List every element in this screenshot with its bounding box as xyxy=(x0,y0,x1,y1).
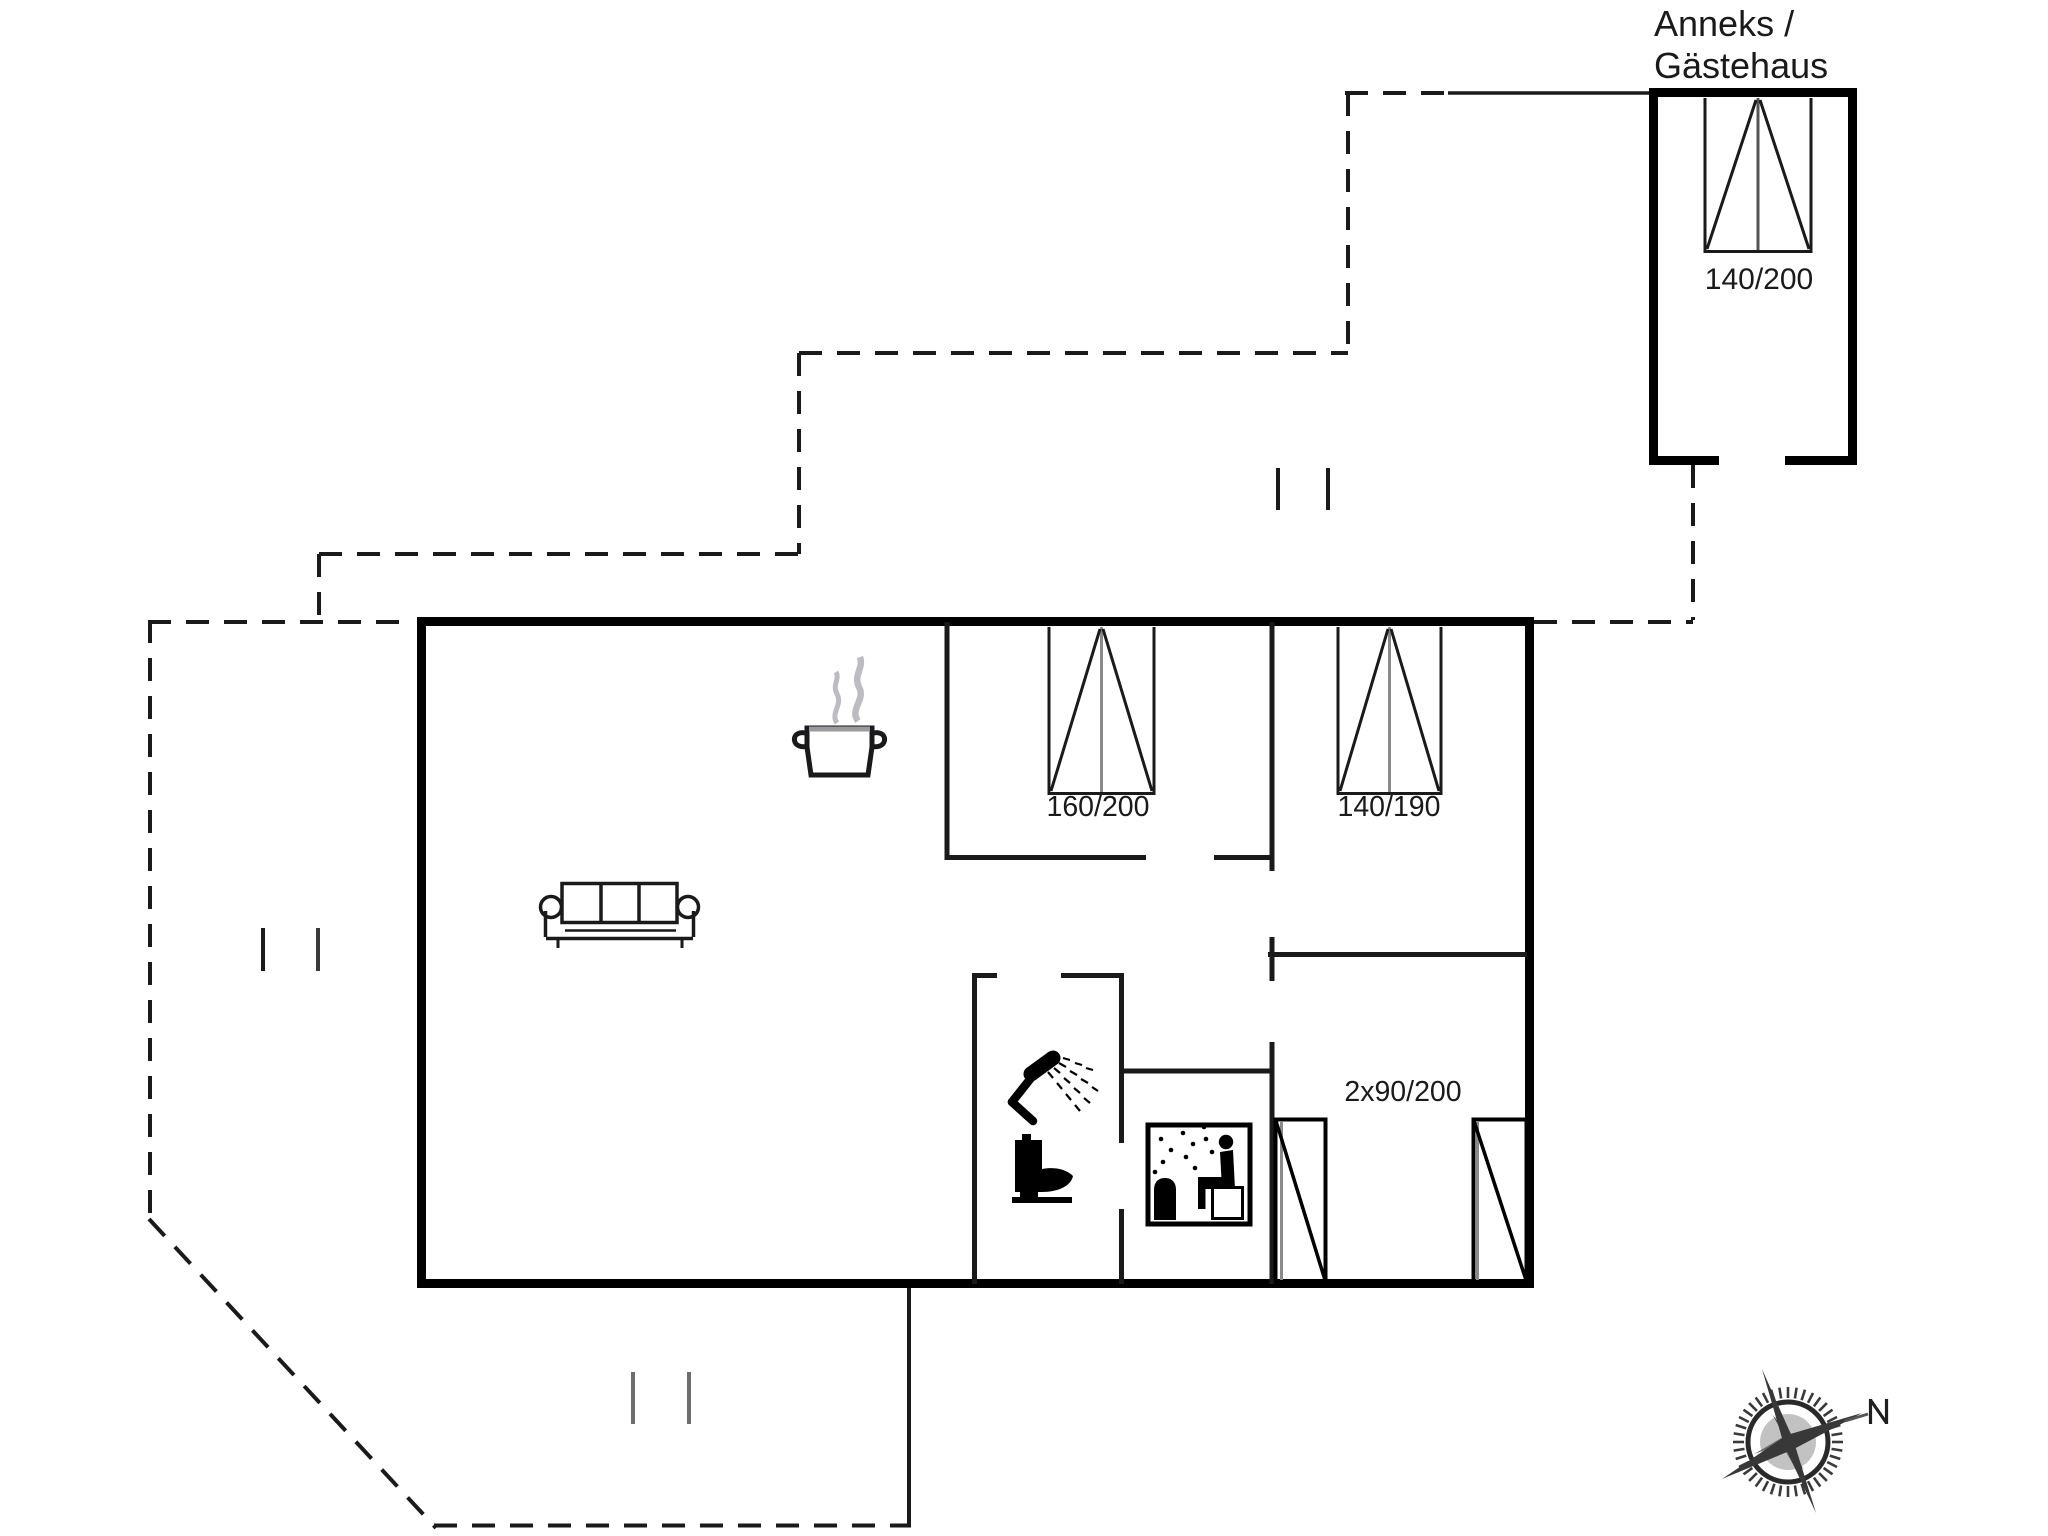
svg-text:160/200: 160/200 xyxy=(1046,791,1149,823)
svg-text:140/190: 140/190 xyxy=(1337,791,1440,823)
svg-text:140/200: 140/200 xyxy=(1705,263,1813,296)
svg-text:Anneks /: Anneks / xyxy=(1654,3,1794,44)
svg-text:2x90/200: 2x90/200 xyxy=(1344,1076,1461,1108)
svg-text:Gästehaus: Gästehaus xyxy=(1654,45,1828,86)
